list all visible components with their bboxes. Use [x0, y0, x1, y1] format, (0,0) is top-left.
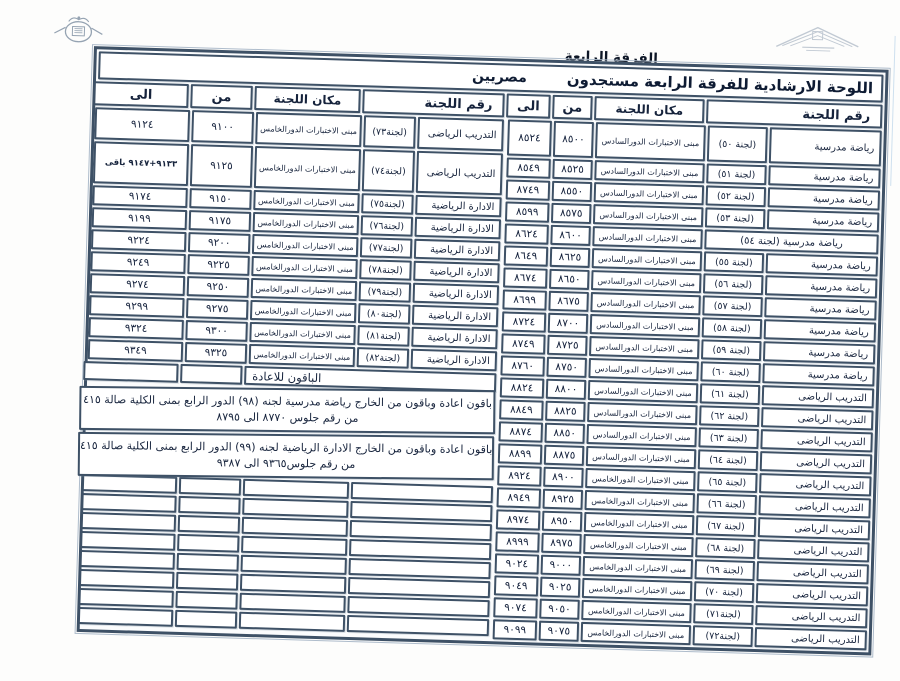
to-cell: ٩٠٢٤ — [495, 553, 540, 574]
to-cell: ٨٧٢٤ — [502, 311, 547, 332]
from-cell: ٨٨٧٥ — [544, 445, 585, 466]
from-cell: ٩٢٢٥ — [187, 254, 250, 276]
committee-name: التدريب الرياضى — [754, 627, 867, 650]
note-line2: من رقم جلوس ٨٧٧٠ الى ٨٧٩٥ — [216, 409, 358, 426]
committee-name: الادارة الرياضية — [414, 239, 501, 262]
location-cell: مبنى الاختبارات الدورالسادس — [594, 182, 705, 205]
committees-73-82-section: رقم اللجنةمكان اللجنةمنالىالتدريب الرياض… — [71, 80, 505, 637]
from-cell: ٩١٧٥ — [189, 210, 252, 232]
location-cell: مبنى الاختبارات الدورالسادس — [594, 160, 705, 183]
committee-name: التدريب الرياضى — [760, 451, 873, 474]
from-cell: ٨٦٧٥ — [548, 291, 589, 312]
to-cell-empty — [83, 361, 179, 383]
committee-name: رياضة مدرسية — [767, 209, 880, 232]
to-cell-empty — [81, 512, 176, 532]
to-cell: ٨٨٧٤ — [498, 421, 543, 442]
to-cell: ٨٧٤٩ — [506, 179, 551, 200]
committee-name: التدريب الرياضى — [416, 151, 503, 196]
to-cell: ٩٢٩٩ — [89, 295, 185, 318]
location-cell-empty — [240, 555, 346, 575]
committee-cell: التدريب الرياضى(لجنة٧٤) — [361, 148, 504, 196]
location-cell-empty — [241, 536, 347, 556]
from-cell: ٩٣٢٥ — [185, 342, 248, 364]
committee-cell: التدريب الرياضى(لجنة٧٣) — [362, 114, 505, 152]
committee-number: (لجنة ٦٤) — [698, 449, 759, 471]
committee-number: (لجنة٧٥) — [361, 193, 414, 215]
note-row: باقون اعادة وباقون من الخارج الادارة الر… — [76, 427, 496, 485]
to-cell: ٨٨٩٩ — [498, 443, 543, 464]
committee-name: التدريب الرياضى — [755, 605, 868, 628]
committee-name: الادارة الرياضية — [411, 327, 498, 350]
from-cell: ٨٦٢٥ — [550, 247, 591, 268]
from-cell-empty — [176, 572, 238, 591]
from-cell: ٨٨٠٠ — [546, 379, 587, 400]
to-cell: ٨٥٩٩ — [505, 201, 550, 222]
to-cell: ٩٢٤٩ — [90, 251, 186, 274]
location-cell: مبنى الاختبارات الدورالسادس — [593, 204, 704, 227]
committee-number: (لجنة ٥٣) — [705, 207, 766, 229]
from-cell-empty — [179, 477, 241, 496]
committee-number: (لجنة ٧٠) — [694, 581, 755, 603]
location-cell: مبنى الاختبارات الدورالخامس — [253, 190, 360, 213]
committee-number: (لجنة ٥١) — [706, 163, 767, 185]
to-cell: ٨٦٢٤ — [504, 223, 549, 244]
to-header: الى — [506, 93, 551, 118]
committee-cell-empty — [347, 615, 489, 636]
to-cell: ٨٩٩٩ — [495, 531, 540, 552]
to-cell: ٨٧٤٩ — [501, 333, 546, 354]
to-cell: ٨٥٤٩ — [506, 157, 551, 178]
guidance-table: اللوحة الارشادية للفرقة الرابعة مستجدون … — [77, 46, 889, 655]
location-cell: مبنى الاختبارات الدورالخامس — [581, 600, 692, 623]
from-cell-empty — [178, 515, 240, 534]
location-cell: مبنى الاختبارات الدورالسادس — [588, 380, 699, 403]
committee-name: التدريب الرياضى — [761, 407, 874, 430]
from-cell: ٩١٥٠ — [189, 188, 252, 210]
from-cell: ٩٠٥٠ — [539, 599, 580, 620]
committee-number: (لجنة٨٠) — [358, 303, 411, 325]
committee-name: الادارة الرياضية — [414, 217, 501, 240]
from-cell: ٨٦٠٠ — [550, 225, 591, 246]
committee-name: رياضة مدرسية — [766, 253, 879, 276]
location-cell: مبنى الاختبارات الدورالخامس — [249, 344, 356, 367]
committees-50-72-section: رقم اللجنةمكان اللجنةمنالىرياضة مدرسية(ل… — [490, 92, 884, 651]
from-cell: ٩٣٠٠ — [185, 320, 248, 342]
university-crest-stamp — [52, 11, 105, 49]
from-cell: ٨٥٧٥ — [551, 203, 592, 224]
committee-number: (لجنة٨٢) — [357, 347, 410, 369]
location-cell: مبنى الاختبارات الدورالسادس — [590, 314, 701, 337]
committee-location-header: مكان اللجنة — [254, 86, 361, 113]
from-cell: ٩٢٥٠ — [187, 276, 250, 298]
from-cell: ٩٠٢٥ — [540, 577, 581, 598]
location-cell-empty — [239, 612, 345, 632]
committee-name: التدريب الرياضى — [417, 117, 504, 152]
from-cell: ٨٩٠٠ — [543, 467, 584, 488]
from-cell: ٨٩٢٥ — [542, 489, 583, 510]
from-cell: ٨٥٠٠ — [553, 121, 594, 158]
to-cell: ٩٣٢٤ — [88, 317, 184, 340]
location-cell: مبنى الاختبارات الدورالخامس — [584, 490, 695, 513]
committee-name: رياضة مدرسية — [762, 363, 875, 386]
from-cell: ٩٠٧٥ — [539, 621, 580, 642]
committee-number: (لجنة ٦٢) — [699, 405, 760, 427]
from-header: من — [552, 95, 593, 120]
to-cell: ٩١٢٤ — [94, 107, 190, 142]
to-cell-empty — [80, 531, 175, 551]
committee-name: رياضة مدرسية — [764, 319, 877, 342]
to-cell-empty — [78, 588, 173, 608]
from-cell: ٨٦٥٠ — [549, 269, 590, 290]
to-header: الى — [93, 81, 189, 108]
to-cell-empty — [81, 493, 176, 513]
committee-name: الادارة الرياضية — [413, 261, 500, 284]
committee-number: (لجنة ٥٨) — [702, 317, 763, 339]
location-cell: مبنى الاختبارات الدورالخامس — [582, 578, 693, 601]
from-cell-empty — [177, 534, 239, 553]
location-cell-empty — [239, 593, 345, 613]
to-cell: ٨٦٩٩ — [502, 289, 547, 310]
to-cell: ٩٠٩٩ — [493, 619, 538, 640]
committee-number: (لجنة ٦٠) — [700, 361, 761, 383]
committee-number: (لجنة ٥٢) — [706, 185, 767, 207]
location-cell: مبنى الاختبارات الدورالخامس — [584, 512, 695, 535]
from-cell-empty — [180, 364, 243, 385]
committee-number-header: رقم اللجنة — [362, 89, 505, 117]
location-cell: مبنى الاختبارات الدورالخامس — [583, 534, 694, 557]
committee-number: (لجنة٧٨) — [359, 259, 412, 281]
committee-number: (لجنة٨١) — [357, 325, 410, 347]
committee-number: (لجنة ٥٥) — [704, 251, 765, 273]
from-header: من — [190, 84, 253, 110]
committee-name: التدريب الرياضى — [757, 539, 870, 562]
to-cell: ٩٠٤٩ — [494, 575, 539, 596]
committee-name: رياضة مدرسية — [763, 341, 876, 364]
note-line2: من رقم جلوس٩٣٦٥ الى ٩٣٨٧ — [216, 455, 355, 472]
note-row: باقون اعادة وباقون من الخارج رياضة مدرسي… — [77, 381, 497, 439]
to-cell: ٩١٧٤ — [92, 185, 188, 208]
committee-name: الادارة الرياضية — [412, 305, 499, 328]
from-cell-empty — [178, 496, 240, 515]
committee-number: (لجنة٧٢) — [692, 625, 753, 647]
location-cell: مبنى الاختبارات الدورالخامس — [251, 278, 358, 301]
to-cell-empty — [80, 550, 175, 570]
committee-name: رياضة مدرسية — [768, 165, 881, 188]
to-cell: ٩٣٤٩ — [88, 339, 184, 362]
from-cell: ٨٧٢٥ — [547, 335, 588, 356]
from-cell: ٨٨٢٥ — [545, 401, 586, 422]
committee-number: (لجنة ٥٦) — [703, 273, 764, 295]
from-cell: ٨٧٥٠ — [546, 357, 587, 378]
location-cell: مبنى الاختبارات الدورالسادس — [586, 446, 697, 469]
from-cell: ٨٩٥٠ — [542, 511, 583, 532]
note-cell: باقون اعادة وباقون من الخارج رياضة مدرسي… — [79, 386, 496, 434]
location-cell: مبنى الاختبارات الدورالسادس — [586, 424, 697, 447]
committee-name: الادارة الرياضية — [411, 349, 498, 372]
from-cell: ٨٥٥٠ — [552, 181, 593, 202]
to-cell: ٨٧٦٠ — [500, 355, 545, 376]
committee-number: (لجنة٧٤) — [362, 149, 415, 193]
committee-name: التدريب الرياضى — [756, 583, 869, 606]
location-cell: مبنى الاختبارات الدورالسادس — [591, 270, 702, 293]
to-cell: ٨٦٤٩ — [504, 245, 549, 266]
from-cell: ٨٩٧٥ — [541, 533, 582, 554]
to-cell-empty — [78, 607, 173, 627]
from-cell: ٩١٠٠ — [191, 110, 254, 144]
from-cell: ٩٢٧٥ — [186, 298, 249, 320]
committee-number: (لجنة ٥٧) — [702, 295, 763, 317]
committee-number: (لجنة ٥٠) — [707, 125, 768, 163]
from-cell: ٨٧٠٠ — [548, 313, 589, 334]
to-cell: ٨٨٤٩ — [499, 399, 544, 420]
location-cell: مبنى الاختبارات الدورالخامس — [255, 112, 362, 147]
committee-name: التدريب الرياضى — [759, 473, 872, 496]
to-cell-empty — [79, 569, 174, 589]
committee-name: رياضة مدرسية — [768, 187, 881, 210]
to-cell: ٩٢٢٤ — [91, 229, 187, 252]
location-cell: مبنى الاختبارات الدورالخامس — [251, 256, 358, 279]
to-cell: ٨٩٢٤ — [497, 465, 542, 486]
committee-number: (لجنة٧٣) — [363, 115, 416, 149]
location-cell-empty — [240, 574, 346, 594]
committee-number: (لجنة٧٩) — [359, 281, 412, 303]
committee-location-header: مكان اللجنة — [594, 96, 705, 123]
committee-cell: التدريب الرياضى(لجنة٧٢) — [691, 624, 868, 651]
title-spacer — [527, 78, 567, 79]
committee-number: (لجنة ٦٧) — [696, 515, 757, 537]
nationality-label: مصريين — [472, 68, 527, 86]
committee-name: التدريب الرياضى — [762, 385, 875, 408]
from-cell: ٩٠٠٠ — [541, 555, 582, 576]
committee-number: (لجنة ٦١) — [700, 383, 761, 405]
location-cell-empty — [242, 498, 348, 518]
table-body: رقم اللجنةمكان اللجنةمنالىرياضة مدرسية(ل… — [81, 80, 884, 651]
from-cell: ٩٢٠٠ — [188, 232, 251, 254]
location-cell: مبنى الاختبارات الدورالسادس — [587, 402, 698, 425]
location-cell: مبنى الاختبارات الدورالخامس — [254, 146, 361, 191]
location-cell: مبنى الاختبارات الدورالسادس — [592, 226, 703, 249]
location-cell: مبنى الاختبارات الدورالسادس — [589, 336, 700, 359]
committee-name: الادارة الرياضية — [413, 283, 500, 306]
committee-number: (لجنة ٦٨) — [695, 537, 756, 559]
from-cell-empty — [175, 610, 237, 629]
location-cell: مبنى الاختبارات الدورالخامس — [249, 322, 356, 345]
to-cell-empty — [82, 474, 177, 494]
location-cell: مبنى الاختبارات الدورالخامس — [582, 556, 693, 579]
to-cell: ٨٩٤٩ — [496, 487, 541, 508]
to-cell: ٩١٩٩ — [92, 207, 188, 230]
committee-number: (لجنة٧٧) — [360, 237, 413, 259]
from-cell: ٨٨٥٠ — [544, 423, 585, 444]
location-cell: مبنى الاختبارات الدورالسادس — [588, 358, 699, 381]
committee-number: (لجنة ٥٩) — [701, 339, 762, 361]
committee-number: (لجنة ٦٩) — [694, 559, 755, 581]
committee-name: رياضة مدرسية — [765, 275, 878, 298]
to-cell: ٩٠٧٤ — [493, 597, 538, 618]
from-cell: ٨٥٢٥ — [552, 159, 593, 180]
location-cell: مبنى الاختبارات الدورالخامس — [253, 212, 360, 235]
scan-artifact-line — [890, 36, 895, 186]
to-cell: ٨٥٢٤ — [507, 119, 552, 156]
location-cell: مبنى الاختبارات الدورالسادس — [590, 292, 701, 315]
committee-name: رياضة مدرسية — [764, 297, 877, 320]
committee-number: (لجنة٧٦) — [361, 215, 414, 237]
location-cell: مبنى الاختبارات الدورالخامس — [250, 300, 357, 323]
location-cell: مبنى الاختبارات الدورالسادس — [595, 122, 706, 161]
committee-name: الادارة الرياضية — [415, 195, 502, 218]
location-cell-empty — [243, 479, 349, 499]
committee-name: التدريب الرياضى — [756, 561, 869, 584]
note-cell: باقون اعادة وباقون من الخارج الادارة الر… — [77, 432, 494, 480]
from-cell: ٩١٢٥ — [190, 144, 253, 188]
to-cell: ٩٢٧٤ — [90, 273, 186, 296]
to-cell: ٨٦٧٤ — [503, 267, 548, 288]
committee-number: (لجنة ٦٥) — [697, 471, 758, 493]
to-cell: ٩١٣٣+٩١٤٧ باقى — [93, 141, 189, 186]
location-cell: مبنى الاختبارات الدورالخامس — [581, 622, 692, 645]
committee-name: التدريب الرياضى — [758, 517, 871, 540]
committee-name: رياضة مدرسية — [769, 127, 882, 166]
committee-name: التدريب الرياضى — [758, 495, 871, 518]
committee-name: التدريب الرياضى — [760, 429, 873, 452]
scanned-sheet: الفرقة الرابعة اللوحة الارشادية للفرقة ا… — [58, 45, 868, 69]
location-cell: مبنى الاختبارات الدورالخامس — [585, 468, 696, 491]
committee-number: (لجنة ٦٣) — [698, 427, 759, 449]
location-cell-empty — [242, 517, 348, 537]
table-title: اللوحة الارشادية للفرقة الرابعة مستجدون — [567, 70, 874, 97]
location-cell: مبنى الاختبارات الدورالخامس — [252, 234, 359, 257]
to-cell: ٨٨٢٤ — [500, 377, 545, 398]
to-cell: ٨٩٧٤ — [496, 509, 541, 530]
committee-number: (لجنة٧١) — [693, 603, 754, 625]
location-cell: مبنى الاختبارات الدورالسادس — [592, 248, 703, 271]
committee-cell: رياضة مدرسية(لجنة ٥٠) — [706, 124, 883, 167]
eagle-emblem-stamp — [772, 20, 863, 57]
committee-number: (لجنة ٦٦) — [696, 493, 757, 515]
from-cell-empty — [175, 591, 237, 610]
from-cell-empty — [176, 553, 238, 572]
